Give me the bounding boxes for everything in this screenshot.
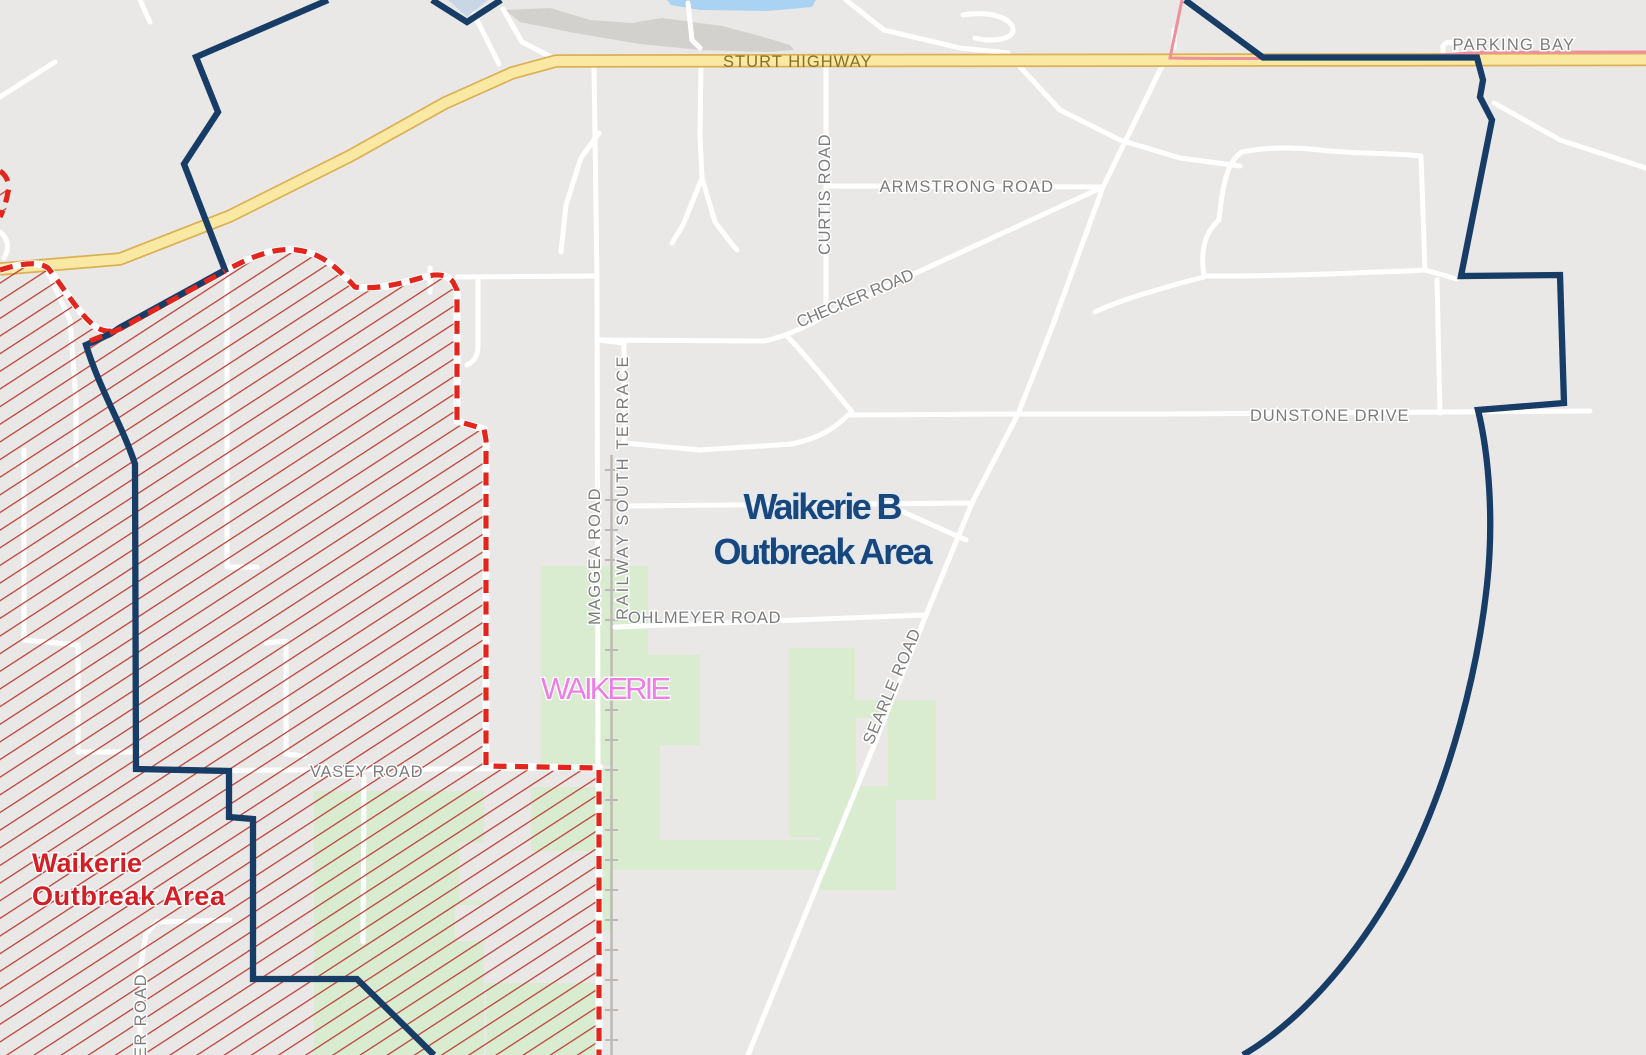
svg-text:MAGGEA ROAD: MAGGEA ROAD <box>586 487 604 625</box>
svg-text:ER ROAD: ER ROAD <box>132 973 150 1055</box>
svg-text:DUNSTONE DRIVE: DUNSTONE DRIVE <box>1250 407 1410 425</box>
svg-text:ARMSTRONG ROAD: ARMSTRONG ROAD <box>880 178 1055 196</box>
svg-text:RAILWAY SOUTH TERRACE: RAILWAY SOUTH TERRACE <box>614 355 632 620</box>
svg-text:Waikerie B: Waikerie B <box>744 486 903 527</box>
svg-text:STURT HIGHWAY: STURT HIGHWAY <box>723 53 873 71</box>
svg-text:Waikerie: Waikerie <box>32 848 142 878</box>
svg-text:WAIKERIE: WAIKERIE <box>541 671 673 706</box>
svg-text:Outbreak Area: Outbreak Area <box>714 531 934 572</box>
svg-text:PARKING BAY: PARKING BAY <box>1453 36 1576 54</box>
svg-text:CURTIS ROAD: CURTIS ROAD <box>816 133 834 255</box>
svg-text:OHLMEYER ROAD: OHLMEYER ROAD <box>628 609 782 627</box>
svg-text:VASEY ROAD: VASEY ROAD <box>310 763 424 781</box>
svg-text:Outbreak Area: Outbreak Area <box>32 881 226 911</box>
